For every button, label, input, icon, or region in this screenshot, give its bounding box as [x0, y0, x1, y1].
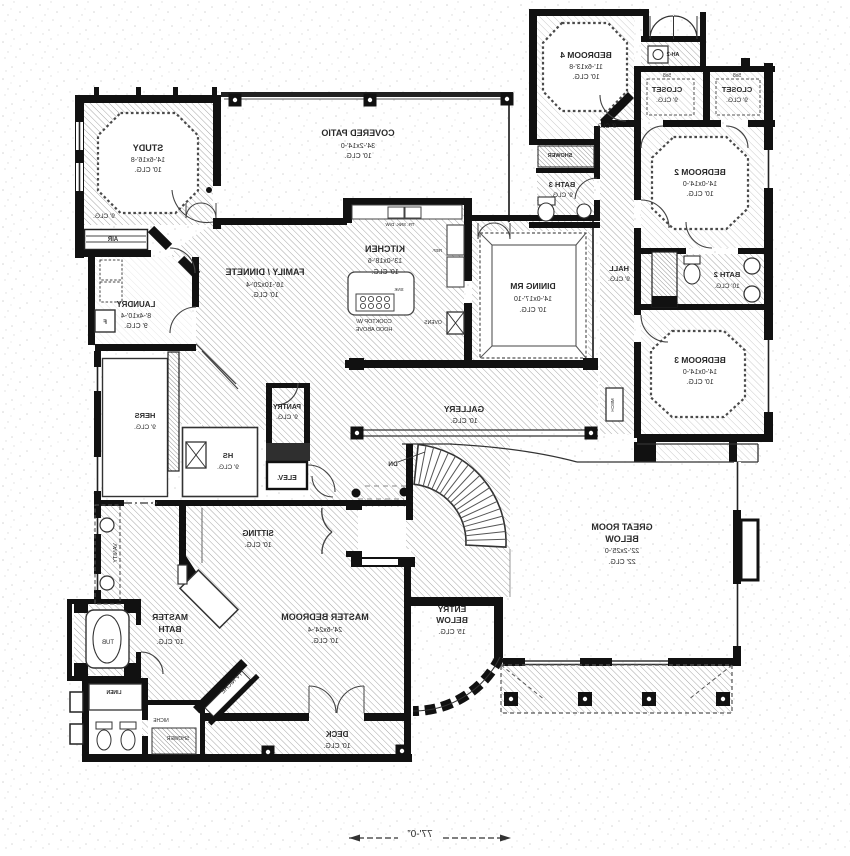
- svg-text:TR. SNK. D/W: TR. SNK. D/W: [385, 222, 415, 227]
- svg-text:HERS: HERS: [135, 411, 156, 420]
- svg-text:10' CLG.: 10' CLG.: [251, 292, 278, 299]
- svg-text:9' CLG.: 9' CLG.: [596, 124, 616, 130]
- svg-text:OVENS: OVENS: [424, 320, 442, 326]
- svg-text:10' CLG.: 10' CLG.: [244, 542, 271, 549]
- svg-text:ENTRY: ENTRY: [437, 604, 466, 614]
- svg-text:24'-6x24'-4: 24'-6x24'-4: [308, 627, 342, 634]
- svg-text:9' CLG.: 9' CLG.: [608, 276, 630, 283]
- svg-text:9' CLG.: 9' CLG.: [217, 464, 239, 471]
- svg-text:MECH: MECH: [610, 398, 615, 411]
- svg-text:BATH 3: BATH 3: [549, 180, 576, 189]
- svg-text:COOKTOP W/: COOKTOP W/: [356, 319, 392, 325]
- svg-text:NICHE: NICHE: [153, 718, 169, 724]
- svg-text:10' CLG.: 10' CLG.: [311, 638, 338, 645]
- svg-text:9' CLG.: 9' CLG.: [551, 192, 573, 199]
- svg-text:10' CLG.: 10' CLG.: [323, 743, 350, 750]
- svg-text:5x8: 5x8: [663, 73, 671, 79]
- svg-text:COVERED PATIO: COVERED PATIO: [321, 128, 394, 138]
- svg-text:SHOWER: SHOWER: [166, 736, 189, 742]
- svg-text:BEDROOM 2: BEDROOM 2: [674, 167, 726, 177]
- svg-text:15' CLG.: 15' CLG.: [438, 629, 465, 636]
- svg-text:LAUNDRY: LAUNDRY: [116, 300, 155, 309]
- svg-text:FAMILY / DINNETE: FAMILY / DINNETE: [225, 267, 304, 277]
- svg-text:AIR: AIR: [107, 237, 118, 243]
- svg-text:PANTRY: PANTRY: [273, 404, 301, 411]
- svg-text:MASTER BEDROOM: MASTER BEDROOM: [281, 612, 369, 622]
- svg-text:BELOW: BELOW: [435, 615, 468, 625]
- svg-text:10' CLG.: 10' CLG.: [714, 283, 740, 290]
- svg-text:BEDROOM 3: BEDROOM 3: [674, 355, 726, 365]
- svg-text:10' CLG.: 10' CLG.: [371, 269, 398, 276]
- svg-text:8'-4x10'-4: 8'-4x10'-4: [121, 313, 151, 320]
- svg-text:34'-2x14'-0: 34'-2x14'-0: [341, 143, 375, 150]
- svg-text:STUDY: STUDY: [133, 143, 164, 153]
- svg-text:9' CLG.: 9' CLG.: [276, 414, 298, 421]
- svg-text:10' CLG.: 10' CLG.: [450, 418, 477, 425]
- svg-text:AH-2: AH-2: [667, 52, 680, 58]
- svg-text:10' CLG.: 10' CLG.: [134, 167, 161, 174]
- svg-text:DN: DN: [388, 461, 398, 468]
- svg-text:14'-0x14'-0: 14'-0x14'-0: [683, 369, 717, 376]
- svg-text:5x8: 5x8: [733, 73, 741, 79]
- svg-text:BATH 2: BATH 2: [714, 270, 741, 279]
- svg-text:LINEN: LINEN: [106, 690, 121, 696]
- svg-text:BEDROOM 4: BEDROOM 4: [560, 50, 612, 60]
- svg-text:VANITY: VANITY: [113, 543, 119, 563]
- svg-text:ELEV.: ELEV.: [277, 475, 297, 482]
- svg-text:10' CLG.: 10' CLG.: [572, 74, 599, 81]
- svg-text:SITTING: SITTING: [242, 529, 274, 538]
- svg-text:MASTER: MASTER: [152, 612, 188, 622]
- svg-text:DINING RM: DINING RM: [510, 281, 555, 291]
- svg-text:10' CLG.: 10' CLG.: [686, 379, 713, 386]
- svg-text:BATH: BATH: [159, 624, 182, 634]
- svg-text:REF.: REF.: [432, 248, 442, 253]
- svg-text:22' CLG.: 22' CLG.: [608, 559, 635, 566]
- svg-text:9' CLG.: 9' CLG.: [93, 213, 115, 220]
- svg-text:GREAT ROOM: GREAT ROOM: [591, 522, 652, 532]
- svg-text:13'-0x18'-6: 13'-0x18'-6: [368, 258, 402, 265]
- svg-text:22'-2x25'-0: 22'-2x25'-0: [605, 548, 639, 555]
- svg-text:HOOD ABOVE: HOOD ABOVE: [355, 327, 392, 333]
- svg-text:10' CLG.: 10' CLG.: [156, 639, 183, 646]
- svg-text:9' CLG.: 9' CLG.: [124, 323, 148, 330]
- svg-text:TUB: TUB: [102, 640, 114, 646]
- svg-text:11'-6x13'-8: 11'-6x13'-8: [569, 64, 603, 71]
- svg-text:9' CLG.: 9' CLG.: [134, 424, 156, 431]
- svg-text:77'-0”: 77'-0”: [407, 829, 432, 840]
- svg-text:10' CLG.: 10' CLG.: [686, 191, 713, 198]
- svg-text:14'-0x17'-10: 14'-0x17'-10: [514, 296, 552, 303]
- svg-text:14'-0x14'-0: 14'-0x14'-0: [683, 181, 717, 188]
- svg-text:BELOW: BELOW: [605, 534, 639, 544]
- svg-text:14'-6x16'-8: 14'-6x16'-8: [131, 157, 165, 164]
- svg-text:CLOSET: CLOSET: [721, 85, 752, 94]
- svg-text:9' CLG.: 9' CLG.: [656, 97, 678, 104]
- svg-text:DECK: DECK: [325, 730, 348, 739]
- svg-text:SHOWER: SHOWER: [548, 153, 573, 159]
- svg-text:HS: HS: [223, 451, 233, 460]
- svg-text:9' CLG.: 9' CLG.: [726, 97, 748, 104]
- svg-text:10' CLG.: 10' CLG.: [519, 307, 546, 314]
- svg-text:SNK: SNK: [394, 287, 403, 292]
- svg-text:KITCHEN: KITCHEN: [365, 244, 405, 254]
- svg-text:F: F: [103, 320, 107, 326]
- svg-text:HALL: HALL: [609, 264, 629, 273]
- svg-text:16'-10x20'-4: 16'-10x20'-4: [246, 282, 284, 289]
- svg-text:CLOSET: CLOSET: [651, 85, 682, 94]
- svg-text:10' CLG.: 10' CLG.: [344, 153, 371, 160]
- svg-text:GALLERY: GALLERY: [444, 404, 485, 414]
